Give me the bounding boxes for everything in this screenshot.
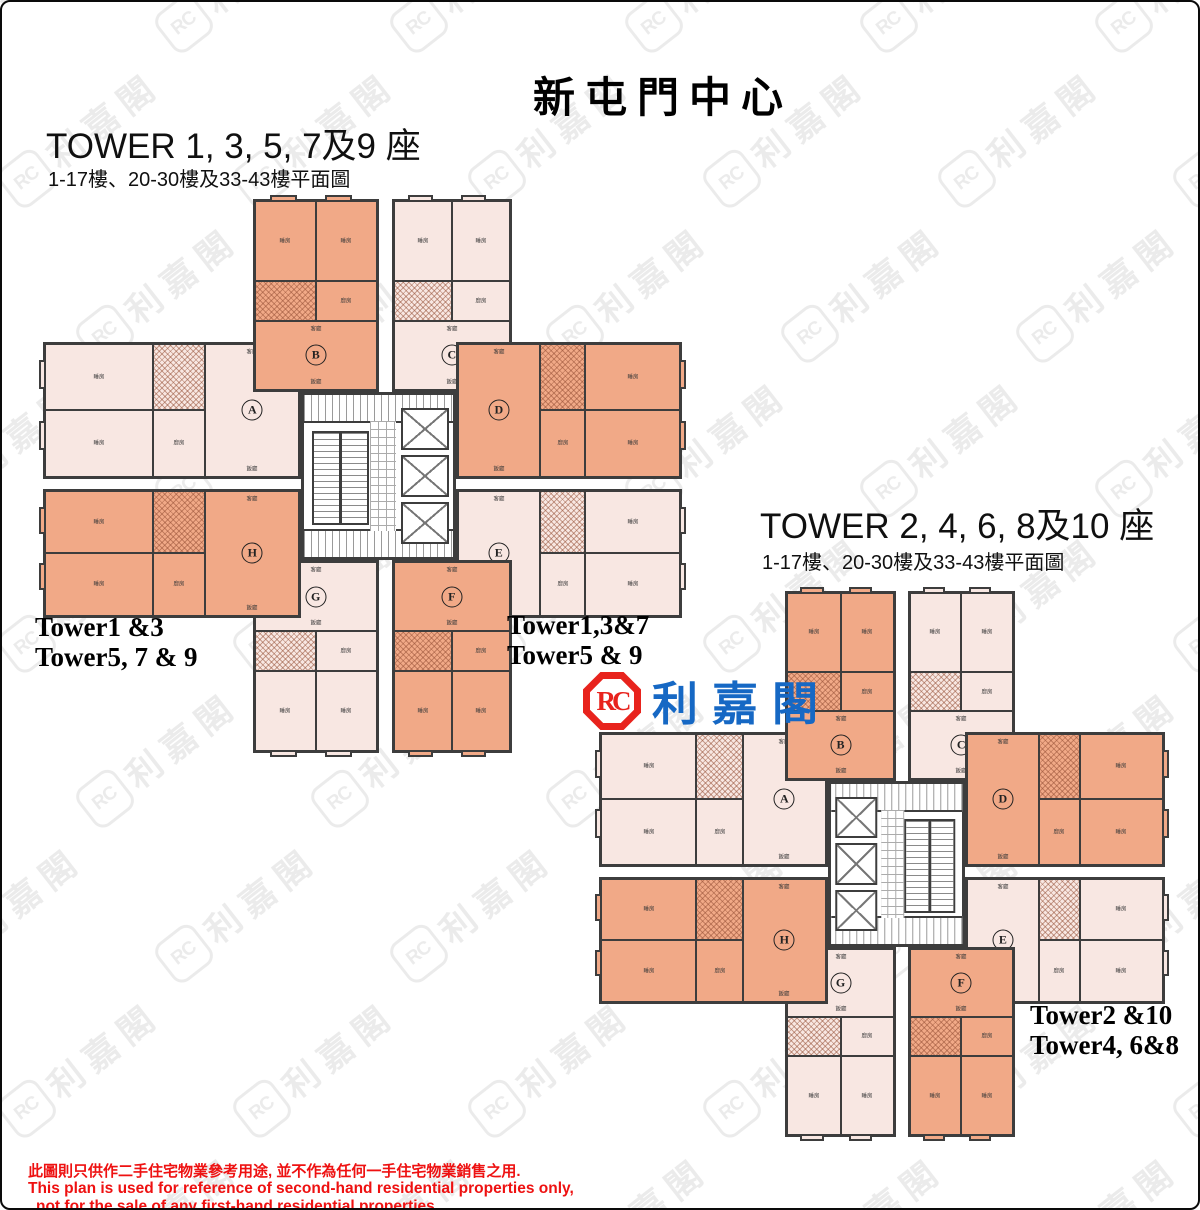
service-rooms: 廚房 [256, 282, 376, 321]
label-tower1-left: Tower1 &3 Tower5, 7 & 9 [35, 612, 198, 672]
bedrooms: 睡房睡房 [602, 735, 698, 864]
dining-label: 飯廳 [835, 1006, 846, 1011]
bay-window [325, 195, 351, 202]
bedroom-label: 睡房 [1116, 907, 1127, 912]
bedroom: 睡房 [395, 202, 453, 281]
watermark-rc-icon: RC [855, 0, 922, 57]
watermark-text: 利嘉閣 [192, 833, 327, 954]
core [828, 781, 965, 947]
unit-B: 睡房睡房廚房客廳B飯廳 [253, 199, 379, 392]
watermark-rc-icon: RC [1168, 145, 1200, 212]
watermark-text: 利嘉閣 [818, 1143, 953, 1210]
bedroom: 睡房 [256, 672, 317, 751]
bay-window [325, 750, 351, 757]
unit-letter-F: F [951, 972, 972, 993]
bedrooms: 睡房睡房 [911, 1055, 1012, 1134]
kitchen-label: 廚房 [341, 298, 352, 303]
kitchen: 廚房 [317, 282, 376, 319]
bedroom: 睡房 [1081, 735, 1163, 801]
dining-label: 飯廳 [493, 466, 504, 471]
service-rooms: 廚房 [395, 630, 510, 669]
bedroom-label: 睡房 [643, 968, 654, 973]
kitchen-label: 廚房 [174, 582, 185, 587]
watermark-rc-icon: RC [1168, 1075, 1200, 1142]
living-dining: 客廳H飯廳 [206, 492, 298, 615]
living-label: 客廳 [779, 884, 790, 889]
living-label: 客廳 [493, 349, 504, 354]
bay-window [595, 750, 602, 778]
watermark-text: 利嘉閣 [897, 0, 1032, 24]
dining-label: 飯廳 [310, 620, 321, 625]
kitchen-label: 廚房 [557, 582, 568, 587]
living-label: 客廳 [446, 326, 457, 331]
label-line: Tower2 &10 [1030, 1000, 1179, 1030]
unit-letter-B: B [305, 345, 326, 366]
unit-D: 睡房睡房廚房客廳D飯廳 [965, 732, 1165, 867]
unit-F: 睡房睡房廚房客廳F飯廳 [908, 947, 1015, 1137]
bedroom: 睡房 [1081, 800, 1163, 864]
bedroom: 睡房 [453, 202, 509, 281]
stairs [904, 819, 955, 912]
watermark-text: 利嘉閣 [427, 833, 562, 954]
bedroom: 睡房 [602, 941, 696, 1000]
unit-letter-D: D [992, 789, 1013, 810]
label-tower2: Tower2 &10 Tower4, 6&8 [1030, 1000, 1179, 1060]
bedroom: 睡房 [602, 735, 696, 801]
kitchen-label: 廚房 [476, 648, 487, 653]
bedroom-label: 睡房 [1116, 764, 1127, 769]
bathroom [697, 880, 742, 941]
service-rooms: 廚房 [539, 492, 585, 615]
bedroom-label: 睡房 [94, 582, 105, 587]
bedrooms: 睡房睡房 [46, 345, 154, 476]
watermark-rc-icon: RC [1168, 610, 1200, 677]
kitchen: 廚房 [541, 554, 585, 614]
bedroom-label: 睡房 [417, 238, 428, 243]
bedroom-label: 睡房 [94, 519, 105, 524]
watermark-text: 利嘉閣 [0, 833, 93, 954]
watermark-text: 利嘉閣 [818, 213, 953, 334]
watermark-text: 利嘉閣 [897, 368, 1032, 489]
bedroom-label: 睡房 [280, 238, 291, 243]
bedroom: 睡房 [962, 594, 1011, 671]
watermark: RC利嘉閣 [1167, 523, 1200, 678]
corridor-lobby [881, 810, 905, 919]
bedroom-label: 睡房 [341, 708, 352, 713]
elevator-bank [835, 797, 877, 931]
page-title: 新屯門中心 [533, 64, 793, 125]
elevator-shaft [401, 408, 449, 450]
watermark-rc-icon: RC [150, 0, 217, 57]
label-tower1-right: Tower1,3&7 Tower5 & 9 [507, 610, 649, 670]
bedroom-label: 睡房 [643, 829, 654, 834]
watermark: RC利嘉閣 [384, 0, 563, 58]
watermark-text: 利嘉閣 [583, 1143, 718, 1210]
watermark: RC利嘉閣 [384, 833, 563, 988]
kitchen-label: 廚房 [341, 648, 352, 653]
kitchen: 廚房 [842, 1018, 894, 1055]
watermark-text: 利嘉閣 [270, 988, 405, 1109]
unit-H: 睡房睡房廚房客廳H飯廳 [43, 489, 301, 618]
bedroom-label: 睡房 [808, 1093, 819, 1098]
bedrooms: 睡房睡房 [256, 202, 376, 283]
bedroom-label: 睡房 [1116, 829, 1127, 834]
bathroom [395, 282, 453, 319]
bedroom-label: 睡房 [94, 441, 105, 446]
living-dining: 客廳F飯廳 [911, 950, 1012, 1016]
bedroom-label: 睡房 [862, 630, 873, 635]
dining-label: 飯廳 [247, 605, 258, 610]
bay-window [270, 195, 296, 202]
bay-window [679, 563, 686, 590]
watermark-text: 利嘉閣 [662, 0, 797, 24]
dining-label: 飯廳 [956, 1006, 967, 1011]
elevator-shaft [401, 502, 449, 544]
bay-window [1162, 809, 1169, 837]
bedroom-label: 睡房 [476, 238, 487, 243]
kitchen-label: 廚房 [557, 441, 568, 446]
bathroom [1040, 735, 1079, 801]
bay-window [408, 195, 433, 202]
bedroom-label: 睡房 [476, 708, 487, 713]
living-label: 客廳 [310, 326, 321, 331]
bedroom: 睡房 [911, 594, 962, 671]
bedrooms: 睡房睡房 [395, 202, 510, 283]
bay-window [595, 950, 602, 977]
bathroom [256, 282, 317, 319]
bedroom-label: 睡房 [627, 441, 638, 446]
living-label: 客廳 [956, 954, 967, 959]
watermark-text: 利嘉閣 [192, 0, 327, 24]
unit-F: 睡房睡房廚房客廳F飯廳 [392, 560, 513, 753]
kitchen: 廚房 [453, 632, 509, 669]
bedroom: 睡房 [602, 880, 696, 941]
kitchen: 廚房 [697, 800, 742, 864]
unit-letter-H: H [774, 930, 795, 951]
living-label: 客廳 [997, 739, 1008, 744]
watermark-text: 利嘉閣 [0, 0, 93, 24]
bay-window [679, 507, 686, 534]
living-dining: 客廳B飯廳 [256, 322, 376, 389]
living-label: 客廳 [956, 716, 967, 721]
elevator-shaft [835, 797, 877, 838]
corridor-lobby [370, 421, 397, 531]
bedroom: 睡房 [788, 594, 842, 671]
bathroom [256, 632, 317, 669]
bedroom-label: 睡房 [643, 764, 654, 769]
kitchen: 廚房 [541, 411, 585, 476]
bathroom [911, 1018, 962, 1055]
stair-flight [931, 821, 953, 910]
bedrooms: 睡房睡房 [256, 670, 376, 751]
bedroom: 睡房 [1081, 941, 1163, 1000]
bedroom: 睡房 [788, 1057, 842, 1134]
living-label: 客廳 [493, 496, 504, 501]
watermark: RC利嘉閣 [227, 988, 406, 1143]
stair-flight [314, 433, 339, 524]
bedroom-label: 睡房 [627, 374, 638, 379]
bay-window [849, 587, 872, 594]
bedroom: 睡房 [256, 202, 317, 281]
bay-window [39, 421, 46, 450]
bathroom [154, 492, 204, 554]
elevator-shaft [835, 890, 877, 931]
bathroom [697, 735, 742, 801]
bay-window [39, 360, 46, 389]
ricacorp-logo: RC 利嘉閣 [583, 668, 832, 734]
living-dining: 客廳D飯廳 [968, 735, 1038, 864]
bedroom-label: 睡房 [417, 708, 428, 713]
bedroom: 睡房 [46, 492, 152, 554]
rc-monogram: RC [583, 672, 641, 730]
watermark-rc-icon: RC [1090, 0, 1157, 57]
bedroom-label: 睡房 [1116, 968, 1127, 973]
bay-window [800, 587, 823, 594]
watermark: RC利嘉閣 [0, 988, 171, 1143]
tower2-heading: TOWER 2, 4, 6, 8及10 座 [760, 498, 1154, 549]
logo-text: 利嘉閣 [652, 668, 832, 734]
kitchen: 廚房 [317, 632, 376, 669]
disclaimer: 此圖則只供作二手住宅物業參考用途, 並不作為任何一手住宅物業銷售之用. This… [28, 1163, 574, 1210]
kitchen-label: 廚房 [714, 968, 725, 973]
bay-window [800, 1134, 823, 1141]
bay-window [1162, 750, 1169, 778]
bay-window [39, 563, 46, 590]
dining-label: 飯廳 [779, 991, 790, 996]
living-label: 客廳 [247, 496, 258, 501]
bedrooms: 睡房睡房 [788, 594, 894, 673]
bay-window [270, 750, 296, 757]
service-rooms: 廚房 [154, 345, 206, 476]
bedrooms: 睡房睡房 [911, 594, 1012, 673]
bedrooms: 睡房睡房 [584, 345, 678, 476]
bedroom: 睡房 [46, 554, 152, 614]
watermark-text: 利嘉閣 [427, 0, 562, 24]
service-rooms: 廚房 [154, 492, 206, 615]
bedroom: 睡房 [317, 202, 376, 281]
living-dining: 客廳F飯廳 [395, 563, 510, 630]
living-dining: 客廳H飯廳 [744, 880, 825, 1001]
dining-label: 飯廳 [835, 768, 846, 773]
bedroom-label: 睡房 [982, 630, 993, 635]
bedrooms: 睡房睡房 [395, 670, 510, 751]
bedroom: 睡房 [395, 672, 453, 751]
bay-window [679, 360, 686, 389]
bay-window [595, 809, 602, 837]
kitchen-label: 廚房 [174, 441, 185, 446]
service-rooms: 廚房 [788, 1016, 894, 1055]
label-line: Tower5, 7 & 9 [35, 642, 198, 672]
bedroom-label: 睡房 [808, 630, 819, 635]
unit-letter-D: D [488, 400, 509, 421]
core [301, 392, 456, 560]
living-label: 客廳 [835, 954, 846, 959]
watermark: RC利嘉閣 [775, 1143, 954, 1210]
watermark: RC利嘉閣 [149, 0, 328, 58]
bay-window [969, 587, 991, 594]
stair-divider [928, 821, 931, 910]
bedrooms: 睡房睡房 [602, 880, 698, 1001]
service-rooms: 廚房 [395, 282, 510, 321]
watermark: RC利嘉閣 [1167, 58, 1200, 213]
bay-window [1162, 950, 1169, 977]
bedroom: 睡房 [586, 492, 678, 554]
bedrooms: 睡房睡房 [46, 492, 154, 615]
unit-letter-F: F [441, 586, 462, 607]
dining-label: 飯廳 [310, 379, 321, 384]
disclaimer-english-2: not for the sale of any first-hand resid… [28, 1198, 574, 1210]
bedroom-label: 睡房 [341, 238, 352, 243]
watermark: RC利嘉閣 [1010, 213, 1189, 368]
watermark: RC利嘉閣 [0, 0, 93, 58]
kitchen: 廚房 [697, 941, 742, 1000]
page: RC利嘉閣RC利嘉閣RC利嘉閣RC利嘉閣RC利嘉閣RC利嘉閣RC利嘉閣RC利嘉閣… [0, 0, 1200, 1210]
kitchen-label: 廚房 [982, 689, 993, 694]
bathroom [541, 345, 585, 412]
unit-letter-H: H [242, 543, 263, 564]
service-rooms: 廚房 [539, 345, 585, 476]
kitchen-label: 廚房 [862, 689, 873, 694]
watermark-text: 利嘉閣 [35, 988, 170, 1109]
bedroom: 睡房 [602, 800, 696, 864]
bedroom: 睡房 [1081, 880, 1163, 941]
living-label: 客廳 [310, 567, 321, 572]
watermark-text: 利嘉閣 [1053, 1143, 1188, 1210]
dining-label: 飯廳 [997, 854, 1008, 859]
kitchen: 廚房 [962, 673, 1011, 710]
service-rooms: 廚房 [697, 880, 744, 1001]
watermark: RC利嘉閣 [854, 0, 1033, 58]
bedroom: 睡房 [317, 672, 376, 751]
watermark: RC利嘉閣 [775, 213, 954, 368]
bay-window [1162, 894, 1169, 921]
bay-window [39, 507, 46, 534]
unit-letter-G: G [305, 586, 326, 607]
bedroom: 睡房 [842, 1057, 894, 1134]
kitchen-label: 廚房 [862, 1034, 873, 1039]
dining-label: 飯廳 [247, 466, 258, 471]
elevator-shaft [835, 843, 877, 884]
core-inner [304, 395, 453, 557]
disclaimer-english-1: This plan is used for reference of secon… [28, 1180, 574, 1197]
unit-letter-B: B [830, 735, 851, 756]
label-line: Tower4, 6&8 [1030, 1030, 1179, 1060]
bay-window [679, 421, 686, 450]
bedrooms: 睡房睡房 [1079, 735, 1163, 864]
elevator-bank [401, 408, 449, 544]
bedroom: 睡房 [46, 411, 152, 476]
stair-flight [906, 821, 928, 910]
living-dining: 客廳D飯廳 [459, 345, 539, 476]
tower1-heading: TOWER 1, 3, 5, 7及9 座 [46, 118, 421, 169]
living-label: 客廳 [835, 716, 846, 721]
kitchen-label: 廚房 [1054, 968, 1065, 973]
stair-flight [342, 433, 367, 524]
bedroom-label: 睡房 [627, 519, 638, 524]
watermark-text: 利嘉閣 [1132, 368, 1200, 489]
bay-window [461, 750, 486, 757]
elevator-shaft [401, 455, 449, 497]
watermark-rc-icon: RC [620, 0, 687, 57]
bathroom [788, 1018, 842, 1055]
watermark: RC利嘉閣 [1010, 1143, 1189, 1210]
unit-letter-A: A [242, 400, 263, 421]
kitchen-label: 廚房 [714, 829, 725, 834]
bathroom [1040, 880, 1079, 941]
bedroom: 睡房 [962, 1057, 1011, 1134]
bedroom: 睡房 [842, 594, 894, 671]
bedroom: 睡房 [586, 411, 678, 476]
bedrooms: 睡房睡房 [1079, 880, 1163, 1001]
dining-label: 飯廳 [779, 854, 790, 859]
tower2-subtitle: 1-17樓、20-30樓及33-43樓平面圖 [762, 546, 1064, 575]
unit-D: 睡房睡房廚房客廳D飯廳 [456, 342, 682, 479]
watermark: RC利嘉閣 [149, 833, 328, 988]
kitchen: 廚房 [154, 411, 204, 476]
bedroom-label: 睡房 [862, 1093, 873, 1098]
watermark-text: 利嘉閣 [1053, 213, 1188, 334]
bay-window [461, 195, 486, 202]
core-inner [831, 784, 962, 944]
kitchen-label: 廚房 [476, 298, 487, 303]
bay-window [969, 1134, 991, 1141]
kitchen-label: 廚房 [1054, 829, 1065, 834]
bedroom-label: 睡房 [930, 1093, 941, 1098]
service-rooms: 廚房 [911, 673, 1012, 712]
kitchen-label: 廚房 [982, 1034, 993, 1039]
bathroom [541, 492, 585, 554]
bathroom [395, 632, 453, 669]
watermark: RC利嘉閣 [0, 833, 93, 988]
bay-window [923, 1134, 945, 1141]
service-rooms: 廚房 [697, 735, 744, 864]
service-rooms: 廚房 [911, 1016, 1012, 1055]
bedroom: 睡房 [911, 1057, 962, 1134]
bedroom: 睡房 [453, 672, 509, 751]
tower1-subtitle: 1-17樓、20-30樓及33-43樓平面圖 [48, 163, 350, 192]
kitchen: 廚房 [453, 282, 509, 319]
label-line: Tower5 & 9 [507, 640, 649, 670]
bedroom-label: 睡房 [643, 907, 654, 912]
living-label: 客廳 [997, 884, 1008, 889]
bedroom-label: 睡房 [94, 374, 105, 379]
kitchen: 廚房 [1040, 941, 1079, 1000]
label-line: Tower1 &3 [35, 612, 198, 642]
bedroom: 睡房 [586, 345, 678, 412]
bathroom [911, 673, 962, 710]
bay-window [408, 750, 433, 757]
kitchen: 廚房 [154, 554, 204, 614]
service-rooms: 廚房 [1038, 880, 1079, 1001]
watermark: RC利嘉閣 [932, 58, 1111, 213]
watermark: RC利嘉閣 [1089, 0, 1200, 58]
dining-label: 飯廳 [446, 620, 457, 625]
watermark-rc-icon: RC [385, 0, 452, 57]
rc-octagon-icon: RC [583, 672, 641, 730]
bedrooms: 睡房睡房 [788, 1055, 894, 1134]
bedroom-label: 睡房 [627, 582, 638, 587]
unit-letter-G: G [830, 972, 851, 993]
service-rooms: 廚房 [256, 630, 376, 669]
unit-H: 睡房睡房廚房客廳H飯廳 [599, 877, 828, 1004]
living-label: 客廳 [446, 567, 457, 572]
bedroom: 睡房 [46, 345, 152, 412]
disclaimer-chinese: 此圖則只供作二手住宅物業參考用途, 並不作為任何一手住宅物業銷售之用. [28, 1163, 574, 1180]
bedroom-label: 睡房 [930, 630, 941, 635]
bathroom [154, 345, 204, 412]
bay-window [849, 1134, 872, 1141]
stairs [312, 431, 370, 526]
